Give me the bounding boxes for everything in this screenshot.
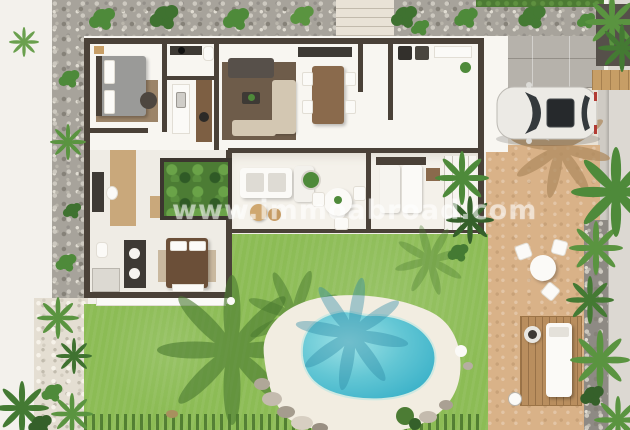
pool-side-stone bbox=[463, 362, 473, 370]
lawn-stone bbox=[166, 410, 178, 418]
pool-side-table bbox=[455, 345, 467, 357]
parked-car bbox=[496, 82, 600, 146]
left-border-plants bbox=[0, 27, 93, 430]
lawn-sphere-decor bbox=[227, 297, 235, 305]
top-border-plants bbox=[89, 5, 595, 35]
watermark: www.immoabroad.com bbox=[172, 195, 537, 226]
floor-plan-render: www.immoabroad.com bbox=[0, 0, 630, 430]
